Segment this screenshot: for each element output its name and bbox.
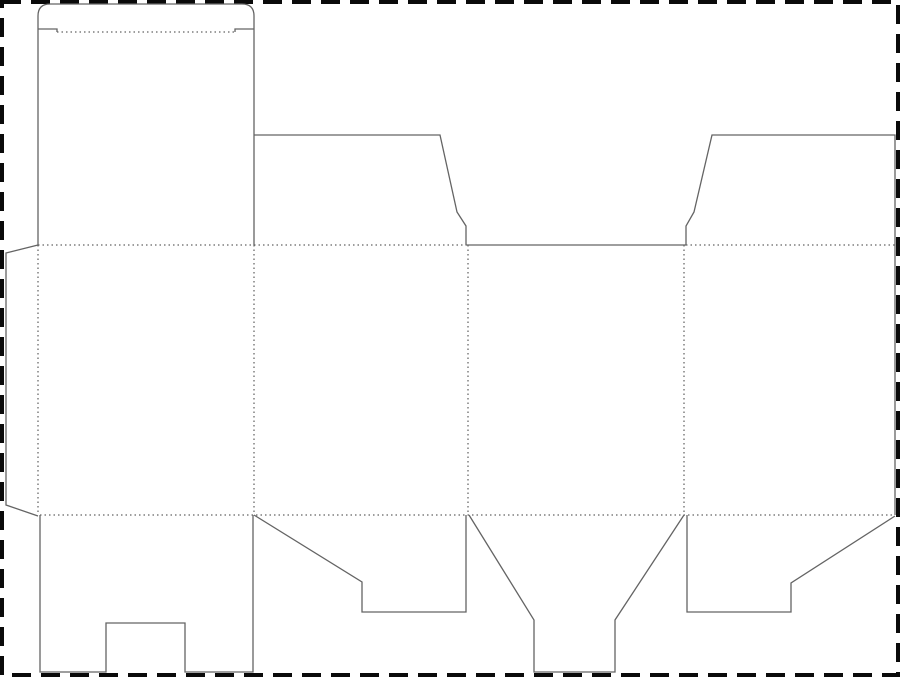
bottom-flap-3-funnel-cut-line [469,515,684,672]
tuck-shoulder-slit-left-cut-line [38,29,57,32]
cut-lines-group [6,4,895,672]
dieline-sheet [0,0,900,677]
dieline-drawing [0,0,900,677]
bottom-flap-2-cut-line [254,515,466,612]
dust-flap-left-cut-line [254,135,466,245]
bottom-flap-4-cut-line [687,515,895,612]
tuck-shoulder-slit-right-cut-line [235,29,254,32]
top-tuck-panel-outline-cut-line [38,4,254,245]
sheet-border [2,2,898,675]
bottom-flap-1-notched-cut-line [40,515,253,672]
glue-flap-outline-cut-line [6,245,38,516]
fold-lines-group [38,32,895,515]
dust-flap-right-cut-line [686,135,895,515]
